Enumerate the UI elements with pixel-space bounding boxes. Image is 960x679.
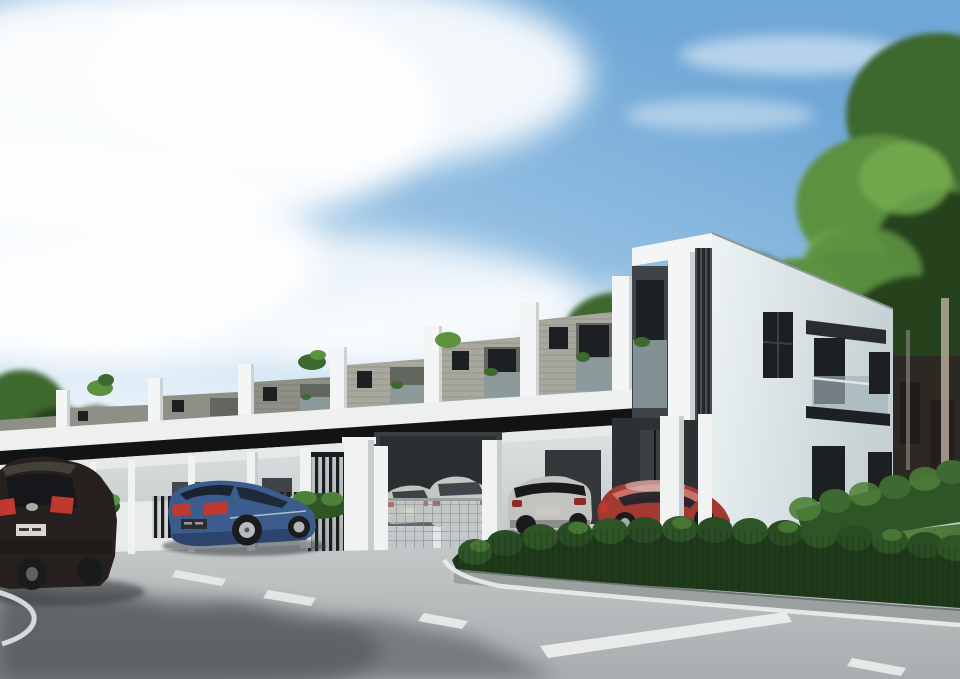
frame-shade [690,252,695,420]
gate-rail [308,452,344,457]
upper-window [549,327,568,349]
tree-highlight [859,142,951,214]
plate-text [195,522,203,525]
balcony-plant [484,368,498,376]
upper-window [452,351,469,370]
hedge-bump [849,482,881,506]
plate-text [184,522,192,525]
hedge-bump [879,475,911,499]
upper-window [263,387,277,401]
tree-trunk [906,330,910,470]
balcony-recess [210,398,238,416]
roof-plant [310,350,326,360]
plate-text [32,528,41,531]
balcony-plant [576,352,590,362]
hedge-bump [819,489,851,513]
bumper [0,540,112,554]
scene-canvas [0,0,960,679]
balcony-plant [634,337,650,347]
front-balcony-glass [633,340,667,408]
alloy-wheel [294,522,305,533]
shrub [321,492,343,506]
balcony-plant [391,381,403,389]
tree-trunk [941,298,949,473]
pillar-shade [368,440,374,558]
upper-window [78,411,88,421]
taillight [512,500,522,507]
wheel-hub [26,567,38,581]
taillight [203,502,228,515]
gate-pillar [374,446,388,556]
upper-window [357,371,372,388]
taillight [50,496,74,514]
front-balcony-door [636,280,664,340]
hedge-highlight [778,521,798,533]
brand-badge [26,503,38,511]
upper-window [172,400,184,412]
plate-text [19,528,29,531]
balcony-glass [576,357,612,391]
balcony-plant [301,394,311,400]
wheel [77,557,103,585]
carport-column [128,460,135,554]
louver-screen [695,248,712,420]
hedge-bump [789,497,821,521]
taillight [172,503,191,517]
car-window [438,482,484,496]
wheel-hub [245,528,250,533]
car-suv-dark [0,457,117,590]
taillight [574,498,586,505]
roof-plant [98,374,114,386]
architectural-rendering [0,0,960,679]
cloud-wisp [625,99,815,131]
taillight [0,498,16,516]
carport-bay [342,432,502,558]
license-plate [536,505,560,516]
side-window [869,352,890,394]
taillight [600,503,608,513]
hedge-highlight [882,529,902,541]
hedge-highlight [672,517,692,529]
roof-plant [435,332,461,348]
